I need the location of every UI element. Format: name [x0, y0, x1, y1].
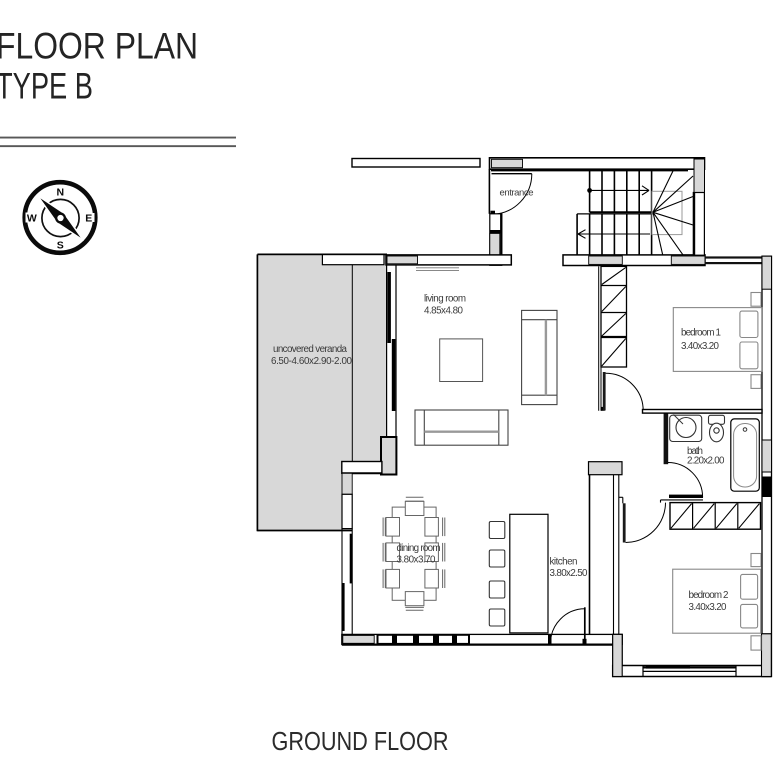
svg-text:3.80x3.70: 3.80x3.70 [397, 554, 437, 565]
svg-text:3.40x3.20: 3.40x3.20 [689, 602, 728, 613]
svg-text:W: W [27, 213, 37, 225]
svg-text:FLOOR PLAN: FLOOR PLAN [0, 26, 198, 67]
svg-text:uncovered veranda: uncovered veranda [273, 344, 348, 355]
svg-text:entrance: entrance [500, 187, 534, 198]
svg-text:dining room: dining room [397, 543, 441, 554]
svg-text:bedroom 2: bedroom 2 [689, 590, 729, 601]
svg-text:6.50-4.60x2.90-2.00: 6.50-4.60x2.90-2.00 [271, 356, 353, 367]
svg-text:kitchen: kitchen [550, 557, 578, 568]
svg-text:TYPE B: TYPE B [0, 66, 93, 107]
svg-text:bedroom 1: bedroom 1 [681, 328, 721, 339]
svg-text:E: E [85, 213, 92, 225]
svg-text:3.40x3.20: 3.40x3.20 [681, 341, 720, 352]
svg-text:living room: living room [424, 294, 466, 305]
svg-text:4.85x4.80: 4.85x4.80 [424, 306, 464, 317]
svg-text:2.20x2.00: 2.20x2.00 [687, 455, 725, 466]
svg-text:S: S [57, 240, 64, 252]
svg-text:3.80x2.50: 3.80x2.50 [550, 568, 589, 579]
svg-text:N: N [57, 187, 65, 199]
svg-text:GROUND FLOOR: GROUND FLOOR [272, 728, 449, 756]
